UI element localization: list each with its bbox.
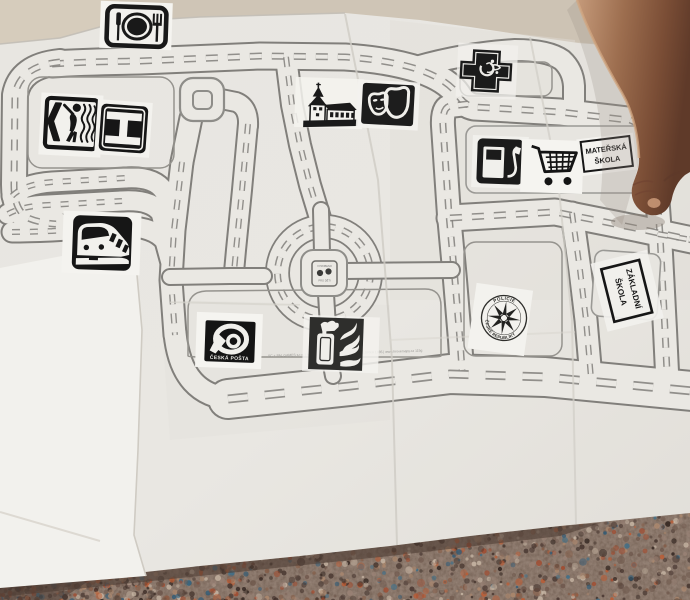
- svg-text:VYROBENO: VYROBENO: [317, 264, 332, 268]
